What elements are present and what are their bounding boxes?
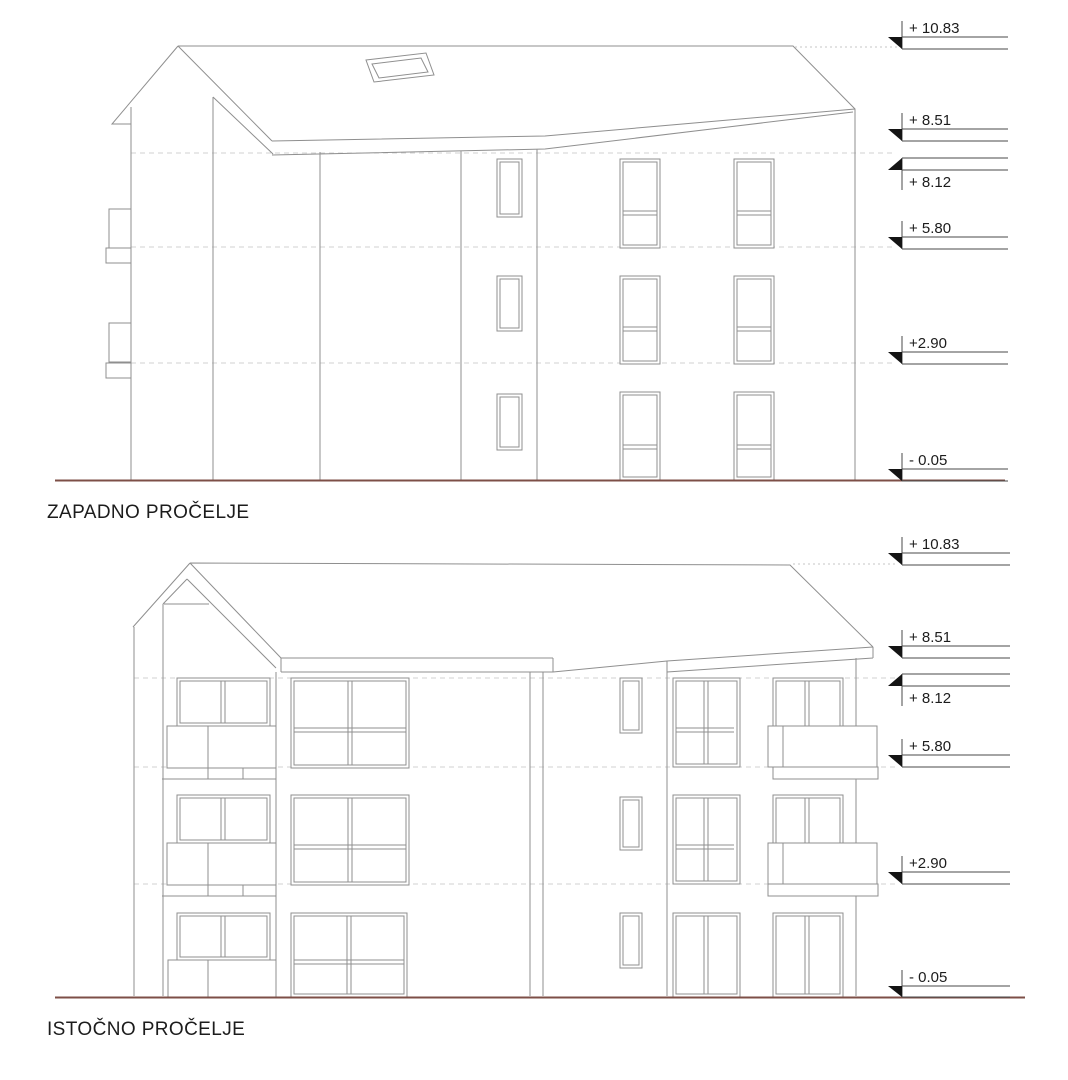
elevation-label: + 8.51 [909,112,951,129]
elevation-label: + 8.12 [909,174,951,191]
window [177,795,270,843]
elevation-marker: - 0.05 [888,452,1008,481]
east-elevation-title: ISTOČNO PROČELJE [47,1019,245,1041]
west-facade-windows [620,159,774,480]
elevation-marker: + 10.83 [888,536,1010,565]
balcony-slab [768,884,878,896]
elevation-marker: + 8.51 [888,112,1008,141]
window [497,276,522,331]
elevation-marker: +2.90 [888,855,1010,884]
window [177,678,270,726]
window [673,678,740,767]
west-stairwell-windows [497,159,522,450]
east-elevation: + 10.83 + 8.51 + 8.12 + 5.80 +2.90 - 0.0… [55,536,1025,998]
window [620,276,660,364]
window [291,795,409,885]
east-elevation-markers: + 10.83 + 8.51 + 8.12 + 5.80 +2.90 - 0.0… [888,536,1010,997]
balcony-parapet [167,726,276,768]
elevation-marker: + 8.51 [888,629,1010,658]
balcony-slab [208,768,243,779]
elevation-label: + 5.80 [909,220,951,237]
window [673,913,740,997]
window [291,678,409,768]
window [734,392,774,480]
balcony-slab [208,885,243,896]
elevation-label: - 0.05 [909,452,947,469]
elevation-marker: + 10.83 [888,20,1008,49]
elevation-label: + 8.51 [909,629,951,646]
elevation-label: + 10.83 [909,536,959,553]
balcony-parapet [167,843,276,885]
elevation-label: - 0.05 [909,969,947,986]
west-elevation: + 10.83 + 8.51 + 8.12 + 5.80 +2.90 - 0.0… [55,20,1008,481]
window [620,797,642,850]
elevation-label: + 5.80 [909,738,951,755]
window [620,913,642,968]
west-elevation-markers: + 10.83 + 8.51 + 8.12 + 5.80 +2.90 - 0.0… [888,20,1008,481]
west-side-balcony-projections [106,209,131,378]
elevation-label: + 10.83 [909,20,959,37]
drawing-sheet: + 10.83 + 8.51 + 8.12 + 5.80 +2.90 - 0.0… [0,0,1068,1080]
elevation-marker: + 8.12 [888,674,1010,707]
elevations-svg: + 10.83 + 8.51 + 8.12 + 5.80 +2.90 - 0.0… [0,0,1068,1080]
elevation-marker: + 8.12 [888,158,1008,191]
window [734,159,774,248]
elevation-marker: - 0.05 [888,969,1010,997]
west-elevation-title: ZAPADNO PROČELJE [47,502,249,524]
balcony-slab [773,767,878,779]
east-stairwell-windows [620,678,642,968]
elevation-label: + 8.12 [909,690,951,707]
west-roof-skylight [366,53,434,82]
balcony-parapet [768,726,877,767]
balcony-parapet [768,843,877,884]
elevation-marker: + 5.80 [888,738,1010,767]
elevation-marker: + 5.80 [888,220,1008,249]
terrace-parapet [168,960,276,997]
elevation-label: +2.90 [909,855,947,872]
east-large-window-column [291,678,409,997]
window [734,276,774,364]
window [497,159,522,217]
elevation-marker: +2.90 [888,335,1008,364]
east-left-loggia-column [162,678,276,997]
window [620,392,660,480]
window [291,913,407,997]
window [497,394,522,450]
window [620,159,660,248]
window [620,678,642,733]
window [177,913,270,960]
east-paired-window-column [673,678,740,997]
window [673,795,740,884]
elevation-label: +2.90 [909,335,947,352]
balcony-door [773,913,843,997]
